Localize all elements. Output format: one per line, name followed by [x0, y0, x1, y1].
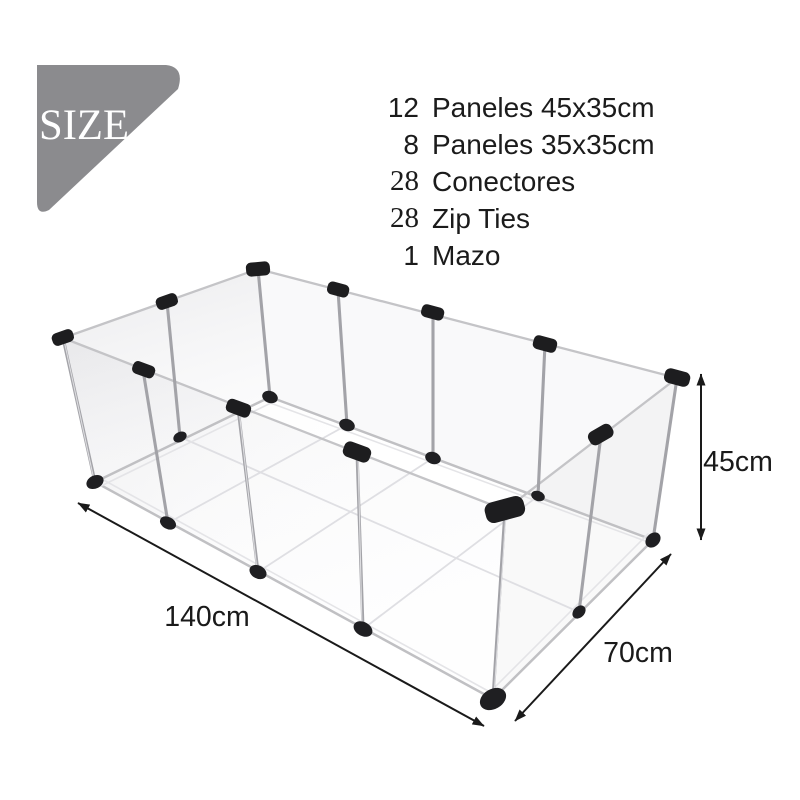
width-label: 70cm	[603, 637, 673, 669]
product-size-diagram: SIZE 12 Paneles 45x35cm 8 Paneles 35x35c…	[0, 0, 800, 800]
length-label: 140cm	[164, 601, 250, 633]
playpen-diagram: 140cm 70cm 45cm	[0, 0, 800, 800]
height-label: 45cm	[703, 446, 773, 478]
